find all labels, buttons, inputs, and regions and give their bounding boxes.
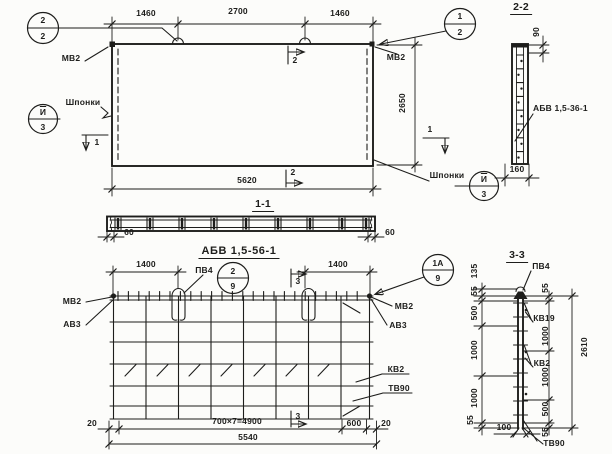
section-title-2-2: 2-2 — [510, 1, 532, 15]
dim-2700: 2700 — [228, 6, 248, 16]
callout-corner-den: 2 — [458, 27, 463, 37]
drawing-canvas — [0, 0, 612, 454]
dim-2610: 2610 — [579, 337, 589, 357]
label-kv19: КВ19 — [533, 313, 555, 323]
callout-pv4-num: 2 — [231, 266, 236, 276]
dim-55-left-bottom: 55 — [465, 415, 475, 425]
dim-1000-left-b: 1000 — [469, 388, 479, 408]
section-mark-3-bottom: 3 — [296, 411, 301, 421]
dim-55-left-top: 55 — [469, 286, 479, 296]
dim-55-right-top: 55 — [540, 283, 550, 293]
dim-135: 135 — [469, 264, 479, 279]
dim-1000-left-a: 1000 — [469, 340, 479, 360]
callout-keys-left-num: И — [40, 107, 46, 117]
section-title-3-3: 3-3 — [506, 249, 528, 263]
label-mv2-left: МВ2 — [62, 53, 81, 63]
callout-corner-num: 1 — [458, 11, 463, 21]
dim-60-left: 60 — [124, 227, 134, 237]
label-tv90: ТВ90 — [388, 383, 410, 393]
drawing-sheet: 1460 2700 1460 2 2 2 МВ2 И 3 Шпонки 1 1 … — [0, 0, 612, 454]
section-mark-1-left: 1 — [95, 137, 100, 147]
dim-20-right: 20 — [381, 418, 391, 428]
label-keys-bottom: Шпонки — [430, 170, 465, 180]
dim-100: 100 — [497, 422, 512, 432]
reinforcement-geometry — [86, 255, 454, 450]
callout-keys-bottom-den: 3 — [482, 189, 487, 199]
dim-2650: 2650 — [397, 93, 407, 113]
section-title-1-1: 1-1 — [252, 198, 274, 212]
dim-1400-right: 1400 — [328, 259, 348, 269]
dim-1460-right: 1460 — [330, 8, 350, 18]
callout-keys-left-den: 3 — [41, 122, 46, 132]
dim-500-right: 500 — [540, 402, 550, 417]
callout-corner2-den: 9 — [436, 273, 441, 283]
label-pv4-section: ПВ4 — [532, 261, 550, 271]
callout-pv4-den: 9 — [231, 281, 236, 291]
section-mark-1-right: 1 — [428, 124, 433, 134]
dimension-ticks — [104, 21, 575, 447]
callout-corner2-num: 1А — [432, 258, 443, 268]
label-mv2-right: МВ2 — [387, 52, 406, 62]
dim-1000-right-a: 1000 — [540, 326, 550, 346]
dim-90: 90 — [531, 27, 541, 37]
dim-5620: 5620 — [237, 175, 257, 185]
dim-5540: 5540 — [238, 432, 258, 442]
dim-4900: 700×7=4900 — [212, 416, 262, 426]
label-pv4: ПВ4 — [195, 265, 213, 275]
section-1-1-geometry — [98, 217, 384, 243]
dim-20-left: 20 — [87, 418, 97, 428]
label-av3-left: АВ3 — [63, 319, 81, 329]
callout-keys-bottom-num: И — [481, 174, 487, 184]
dim-500-left: 500 — [469, 306, 479, 321]
label-mv2-right-2: МВ2 — [395, 301, 414, 311]
label-tv90-section: ТВ90 — [543, 438, 565, 448]
panel-caption: АБВ 1,5-56-1 — [198, 245, 279, 259]
section-3-3-geometry — [474, 271, 578, 444]
dim-600: 600 — [347, 418, 362, 428]
callout-loop-den: 2 — [41, 31, 46, 41]
label-keys-left: Шпонки — [66, 97, 101, 107]
section-mark-2-top: 2 — [293, 55, 298, 65]
dim-55-right-bottom: 55 — [540, 427, 550, 437]
dim-160: 160 — [510, 164, 525, 174]
dim-1460-left: 1460 — [136, 8, 156, 18]
callout-loop-num: 2 — [41, 15, 46, 25]
label-av3-right: АВ3 — [389, 320, 407, 330]
section-mark-2-bottom: 2 — [291, 167, 296, 177]
section-mark-3-top: 3 — [296, 276, 301, 286]
dim-1400-left: 1400 — [136, 259, 156, 269]
dim-60-right: 60 — [385, 227, 395, 237]
dim-1000-right-b: 1000 — [540, 367, 550, 387]
label-abv-36: АБВ 1,5-36-1 — [533, 103, 588, 113]
label-kv2: КВ2 — [388, 364, 405, 374]
label-mv2-left-2: МВ2 — [63, 296, 82, 306]
